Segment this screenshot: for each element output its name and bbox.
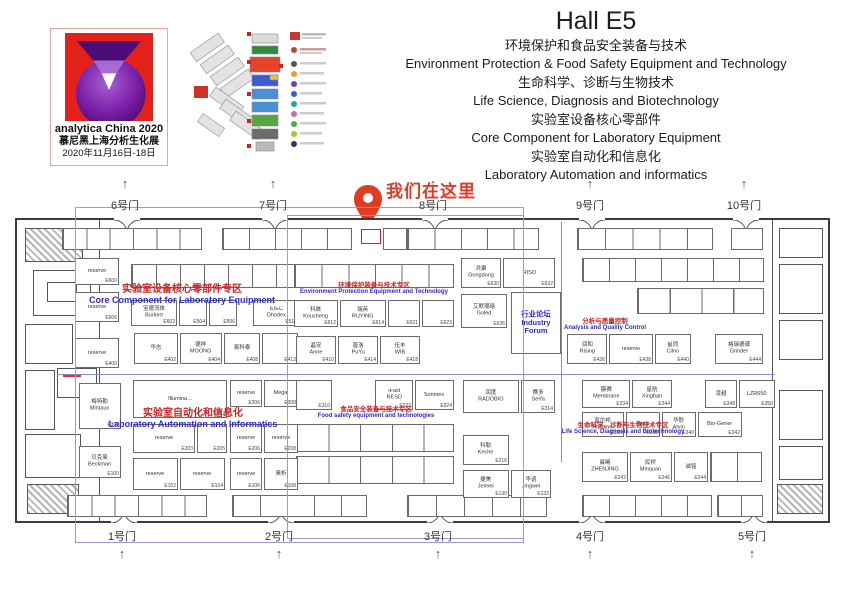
highlighted-booth (361, 229, 381, 244)
gate-arrow-icon: ↑ (428, 546, 448, 561)
booth-number: E606 (105, 316, 117, 321)
booth-number: E104 (211, 484, 223, 489)
hall-category-line: Life Science, Diagnosis and Biotechnolog… (352, 92, 840, 110)
booth-label: 行业论坛 Industry Forum (514, 311, 558, 335)
booth-strip (62, 228, 202, 250)
service-room (25, 370, 55, 430)
booth-strip (582, 495, 712, 517)
booth-label: 科勒 Keche (478, 444, 494, 456)
booth: 华志E402 (134, 333, 178, 364)
booth-number: E334 (616, 402, 628, 407)
booth-number: E244 (694, 476, 706, 481)
booth: 普洛 PuYuE414 (338, 336, 378, 364)
gate-label: 10号门 (714, 197, 774, 213)
booth-strip (717, 495, 763, 517)
booth-label: 富尔邦 Fulltime (593, 418, 612, 430)
booth-number: E205 (213, 447, 225, 452)
booth-strip (294, 264, 454, 288)
booth-label: IDEC Dhodex (266, 307, 285, 319)
logo-subtitle: 慕尼黑上海分析生化展 (51, 136, 167, 148)
booth: 格瑞德谱 GrinderE444 (715, 334, 763, 364)
booth-number: E404 (208, 358, 220, 363)
booth: 凌越E348 (705, 380, 737, 408)
gate-arrow-icon: ↑ (263, 176, 283, 191)
booth-strip (731, 228, 763, 250)
booth: reserveE208 (264, 424, 298, 453)
hall-category-line: 生命科学、诊断与生物技术 (352, 74, 840, 92)
booth: MegaE308 (264, 380, 298, 407)
zone-divider-line (57, 374, 775, 375)
booth: E623 (422, 300, 454, 327)
booth-number: E623 (440, 321, 452, 326)
booth: 华聆 AtvioE340 (662, 412, 696, 437)
booth-label: 捷美 Jeimei (478, 478, 494, 490)
booth-number: E414 (364, 358, 376, 363)
booth-number: E632 (541, 282, 553, 287)
booth-label: Mega (274, 390, 288, 396)
booth: 星同 CilnoE440 (655, 334, 691, 364)
booth: E621 (388, 300, 420, 327)
booth-label: reserve (622, 346, 640, 352)
logo-dates: 2020年11月16日-18日 (51, 148, 167, 160)
booth-label: reserve (272, 435, 290, 441)
booth-number: E300 (107, 423, 119, 428)
gate-arrow-icon: ↑ (423, 176, 443, 191)
booth-label: reserve (155, 435, 173, 441)
booth: E504 (179, 300, 207, 326)
gate-arrow-icon: ↑ (734, 176, 754, 191)
booth: 润度 RADOBIO (463, 380, 519, 413)
booth: IDEC DhodexE510 (253, 300, 299, 326)
booth-label: 艾默璎珞 Goled (473, 305, 495, 317)
booth-label: 德祥 MOONG (190, 342, 211, 354)
booth-number: E306 (248, 401, 260, 406)
booth: 伍丰 WIBE418 (380, 336, 420, 364)
hall-category-line: Core Component for Laboratory Equipment (352, 129, 840, 147)
booth: 诚铭E244 (674, 452, 708, 482)
booth: 瑞英 RUYINGE614 (340, 300, 386, 327)
booth: reserveE102 (133, 458, 178, 490)
booth: 膜赛 MembraneE334 (582, 380, 630, 408)
booth: 赛多 SerfaE314 (521, 380, 555, 413)
booth-strip (582, 258, 764, 282)
booth-label: Bio-Gener (707, 421, 732, 427)
booth: LZR650E350 (739, 380, 775, 408)
service-room (779, 264, 823, 314)
stairwell-icon (777, 484, 823, 514)
booth-strip (296, 456, 454, 484)
booth-strip (67, 495, 207, 517)
booth-strip (383, 228, 407, 250)
service-room (47, 282, 77, 302)
booth-number: E630 (487, 282, 499, 287)
booth: 易科泰E408 (224, 333, 260, 364)
gate-label: 4号门 (560, 528, 620, 544)
booth-number: E436 (593, 358, 605, 363)
hall-category-line: Environment Protection & Food Safety Equ… (352, 55, 840, 73)
booth: 润和 RisingE436 (567, 334, 607, 364)
booth-label: 瑞英 RUYING (352, 307, 373, 319)
booth-number: E132 (537, 492, 549, 497)
booth-number: E302 (213, 412, 225, 417)
booth-number: E614 (372, 321, 384, 326)
booth-number: E636 (493, 322, 505, 327)
booth: RISOE632 (503, 258, 555, 288)
gate-label: 6号门 (95, 197, 155, 213)
booth-label: reserve (88, 304, 106, 310)
booth-number: E612 (324, 321, 336, 326)
booth-label: 共聚 Gongdong (468, 267, 494, 279)
booth-label: reserve (88, 350, 106, 356)
booth-number: E344 (658, 402, 670, 407)
booth-strip (131, 264, 299, 288)
booth: 宝德流体 BurkertE602 (131, 300, 177, 326)
booth-number: E600 (105, 279, 117, 284)
booth-number: E130 (495, 492, 507, 497)
booth: E412 (262, 333, 298, 364)
booth: 星航 XinghanE344 (632, 380, 672, 408)
booth-label: 诚铭 (685, 464, 696, 470)
booth-number: E310 (318, 404, 330, 409)
booth-number: E412 (284, 358, 296, 363)
booth: reserveE400 (75, 338, 119, 368)
booth-label: 贝克曼 Beckman (88, 456, 111, 468)
booth: 富尔邦 FulltimeE338 (582, 412, 624, 437)
booth-number: E246 (658, 476, 670, 481)
booth: 科勒 KecheE216 (463, 435, 509, 465)
booth-number: E418 (406, 358, 418, 363)
booth-number: E350 (761, 402, 773, 407)
booth-number: E342 (728, 431, 740, 436)
booth-number: E324 (440, 404, 452, 409)
booth: E205 (197, 424, 227, 453)
floorplan-page: analytica China 2020 慕尼黑上海分析生化展 2020年11月… (0, 0, 844, 608)
booth-number: E504 (193, 320, 205, 325)
booth: 晨曦 ZHENJINGE242 (582, 452, 628, 482)
booth: E310 (296, 380, 332, 410)
booth-label: 奥析 (275, 471, 286, 477)
logo-title: analytica China 2020 (51, 123, 167, 136)
gate-arrow-icon: ↑ (269, 546, 289, 561)
booth-label: RISO (522, 270, 535, 276)
service-room (779, 320, 823, 360)
booth-label: 华志 (150, 345, 161, 351)
booth-number: E444 (749, 358, 761, 363)
booth: 捷美 JeimeiE130 (463, 470, 509, 498)
booth: iFast RESDE322 (375, 380, 413, 410)
booth-strip (222, 228, 352, 250)
booth-number: E408 (246, 358, 258, 363)
booth-strip (296, 424, 454, 452)
booth: reserveE438 (609, 334, 653, 364)
booth: reserveE206 (230, 424, 262, 453)
booth-label: reserve (237, 435, 255, 441)
booth-label: 易科泰 (234, 345, 251, 351)
booth-number: E336 (646, 431, 658, 436)
booth-label: 润和 Rising (579, 343, 594, 355)
booth: Illumina…E302 (133, 380, 227, 418)
service-room (779, 228, 823, 258)
booth-label: reserve (237, 390, 255, 396)
gate-label: 9号门 (560, 197, 620, 213)
booth-label: 普洛 PuYu (351, 344, 364, 356)
booth-number: E216 (495, 459, 507, 464)
booth-label: 赛多 Serfa (531, 390, 544, 402)
booth-strip (232, 495, 367, 517)
booth: 晶安 AnneE410 (296, 336, 336, 364)
booth-number: E314 (541, 407, 553, 412)
booth: SonmexE324 (415, 380, 454, 410)
booth-number: E348 (723, 402, 735, 407)
booth: 梅特勒 MintauxE300 (79, 383, 121, 429)
booth-number: E100 (107, 472, 119, 477)
hall-title-block: Hall E5 环境保护和食品安全装备与技术 Environment Prote… (352, 6, 840, 185)
service-room (779, 390, 823, 440)
gate-arrow-icon: ↑ (580, 546, 600, 561)
booth-label: 晶安 Anne (310, 344, 323, 356)
booth-number: E203 (181, 447, 193, 452)
booth-number: E242 (614, 476, 626, 481)
booth-label: 华谊 Jingwei (522, 478, 540, 490)
booth-number: E440 (677, 358, 689, 363)
booth-number: E438 (639, 358, 651, 363)
hall-floorplan: reserveE600reserveE606reserveE400宝德流体 Bu… (15, 218, 830, 523)
booth: 华谊 JingweiE132 (511, 470, 551, 498)
gate-arrow-icon: ↑ (742, 546, 762, 561)
booth-label: Illumina… (168, 396, 193, 402)
booth-label: 晨曦 ZHENJING (591, 461, 619, 473)
booth-label: reserve (88, 268, 106, 274)
booth: reserveE106 (230, 458, 262, 490)
booth-number: E506 (223, 320, 235, 325)
booth: 艾默璎珞 GoledE636 (461, 294, 507, 328)
booth: 行业论坛 Industry Forum (511, 292, 561, 354)
gate-arrow-icon: ↑ (115, 176, 135, 191)
booth-label: reserve (193, 471, 211, 477)
gate-label: 5号门 (722, 528, 782, 544)
booth-number: E206 (248, 447, 260, 452)
booth: reserveE606 (75, 292, 119, 322)
booth-label: 科晟 Kousheng (304, 307, 329, 319)
booth-label: 凌越 (715, 391, 726, 397)
booth-strip (637, 288, 764, 314)
service-room (779, 446, 823, 480)
gate-arrow-icon: ↑ (112, 546, 132, 561)
booth-label: 梅特勒 Mintaux (90, 400, 109, 412)
analytica-logo-graphic (63, 33, 155, 121)
booth: 德祥 MOONGE404 (180, 333, 222, 364)
venue-overview-map (186, 24, 332, 166)
booth-number: E602 (163, 320, 175, 325)
booth-label: 星航 Xinghan (642, 388, 662, 400)
booth: 民桥 MinquanE246 (630, 452, 672, 482)
booth-strip (577, 228, 713, 250)
booth-number: E410 (322, 358, 334, 363)
booth-strip (710, 452, 762, 482)
booth-label: 润度 RADOBIO (478, 390, 503, 402)
booth-strip (407, 495, 547, 517)
booth-label: reserve (237, 471, 255, 477)
gate-label: 3号门 (408, 528, 468, 544)
booth-label: 星同 Cilno (667, 343, 680, 355)
booth-label: 民桥 Minquan (640, 461, 661, 473)
booth-number: E108 (284, 484, 296, 489)
booth-label: LZR650 (747, 391, 767, 397)
booth: 共聚 GongdongE630 (461, 258, 501, 288)
hall-category-line: 实验室设备核心零部件 (352, 111, 840, 129)
booth: reserveE306 (230, 380, 262, 407)
gate-label: 2号门 (249, 528, 309, 544)
wall (772, 220, 773, 521)
hall-title: Hall E5 (352, 6, 840, 36)
hall-category-line: 实验室自动化和信息化 (352, 148, 840, 166)
booth-number: E402 (164, 358, 176, 363)
service-room (25, 324, 73, 364)
booth-number: E308 (284, 401, 296, 406)
booth-number: E102 (164, 484, 176, 489)
booth: 科晟 KoushengE612 (294, 300, 338, 327)
booth: Tan'sE336 (626, 412, 660, 437)
booth-label: reserve (146, 471, 164, 477)
booth-number: E322 (399, 404, 411, 409)
gate-arrow-icon: ↑ (580, 176, 600, 191)
booth: E506 (209, 300, 237, 326)
booth-number: E106 (248, 484, 260, 489)
booth-strip (407, 228, 539, 250)
booth-number: E340 (682, 431, 694, 436)
zone-divider-line (561, 222, 562, 462)
booth-number: E400 (105, 362, 117, 367)
gate-label: 8号门 (403, 197, 463, 213)
booth: Bio-GenerE342 (698, 412, 742, 437)
event-logo: analytica China 2020 慕尼黑上海分析生化展 2020年11月… (50, 28, 168, 166)
booth-label: 伍丰 WIB (394, 344, 405, 356)
gate-label: 1号门 (92, 528, 152, 544)
booth: reserveE600 (75, 258, 119, 285)
booth-number: E338 (610, 431, 622, 436)
booth-label: 宝德流体 Burkert (143, 307, 165, 319)
booth-label: 格瑞德谱 Grinder (728, 343, 750, 355)
gate-label: 7号门 (243, 197, 303, 213)
hall-category-line: 环境保护和食品安全装备与技术 (352, 37, 840, 55)
booth-number: E621 (406, 321, 418, 326)
booth: reserveE104 (180, 458, 225, 490)
booth: reserveE203 (133, 424, 195, 453)
booth-number: E208 (284, 447, 296, 452)
booth-label: 膜赛 Membrane (593, 388, 619, 400)
service-room (25, 434, 81, 478)
booth-label: Tan's (637, 421, 650, 427)
booth-label: iFast RESD (386, 389, 401, 401)
booth-label: 华聆 Atvio (673, 418, 685, 430)
booth-label: Sonmex (424, 392, 444, 398)
booth: 贝克曼 BeckmanE100 (79, 446, 121, 478)
booth: 奥析E108 (264, 458, 298, 490)
